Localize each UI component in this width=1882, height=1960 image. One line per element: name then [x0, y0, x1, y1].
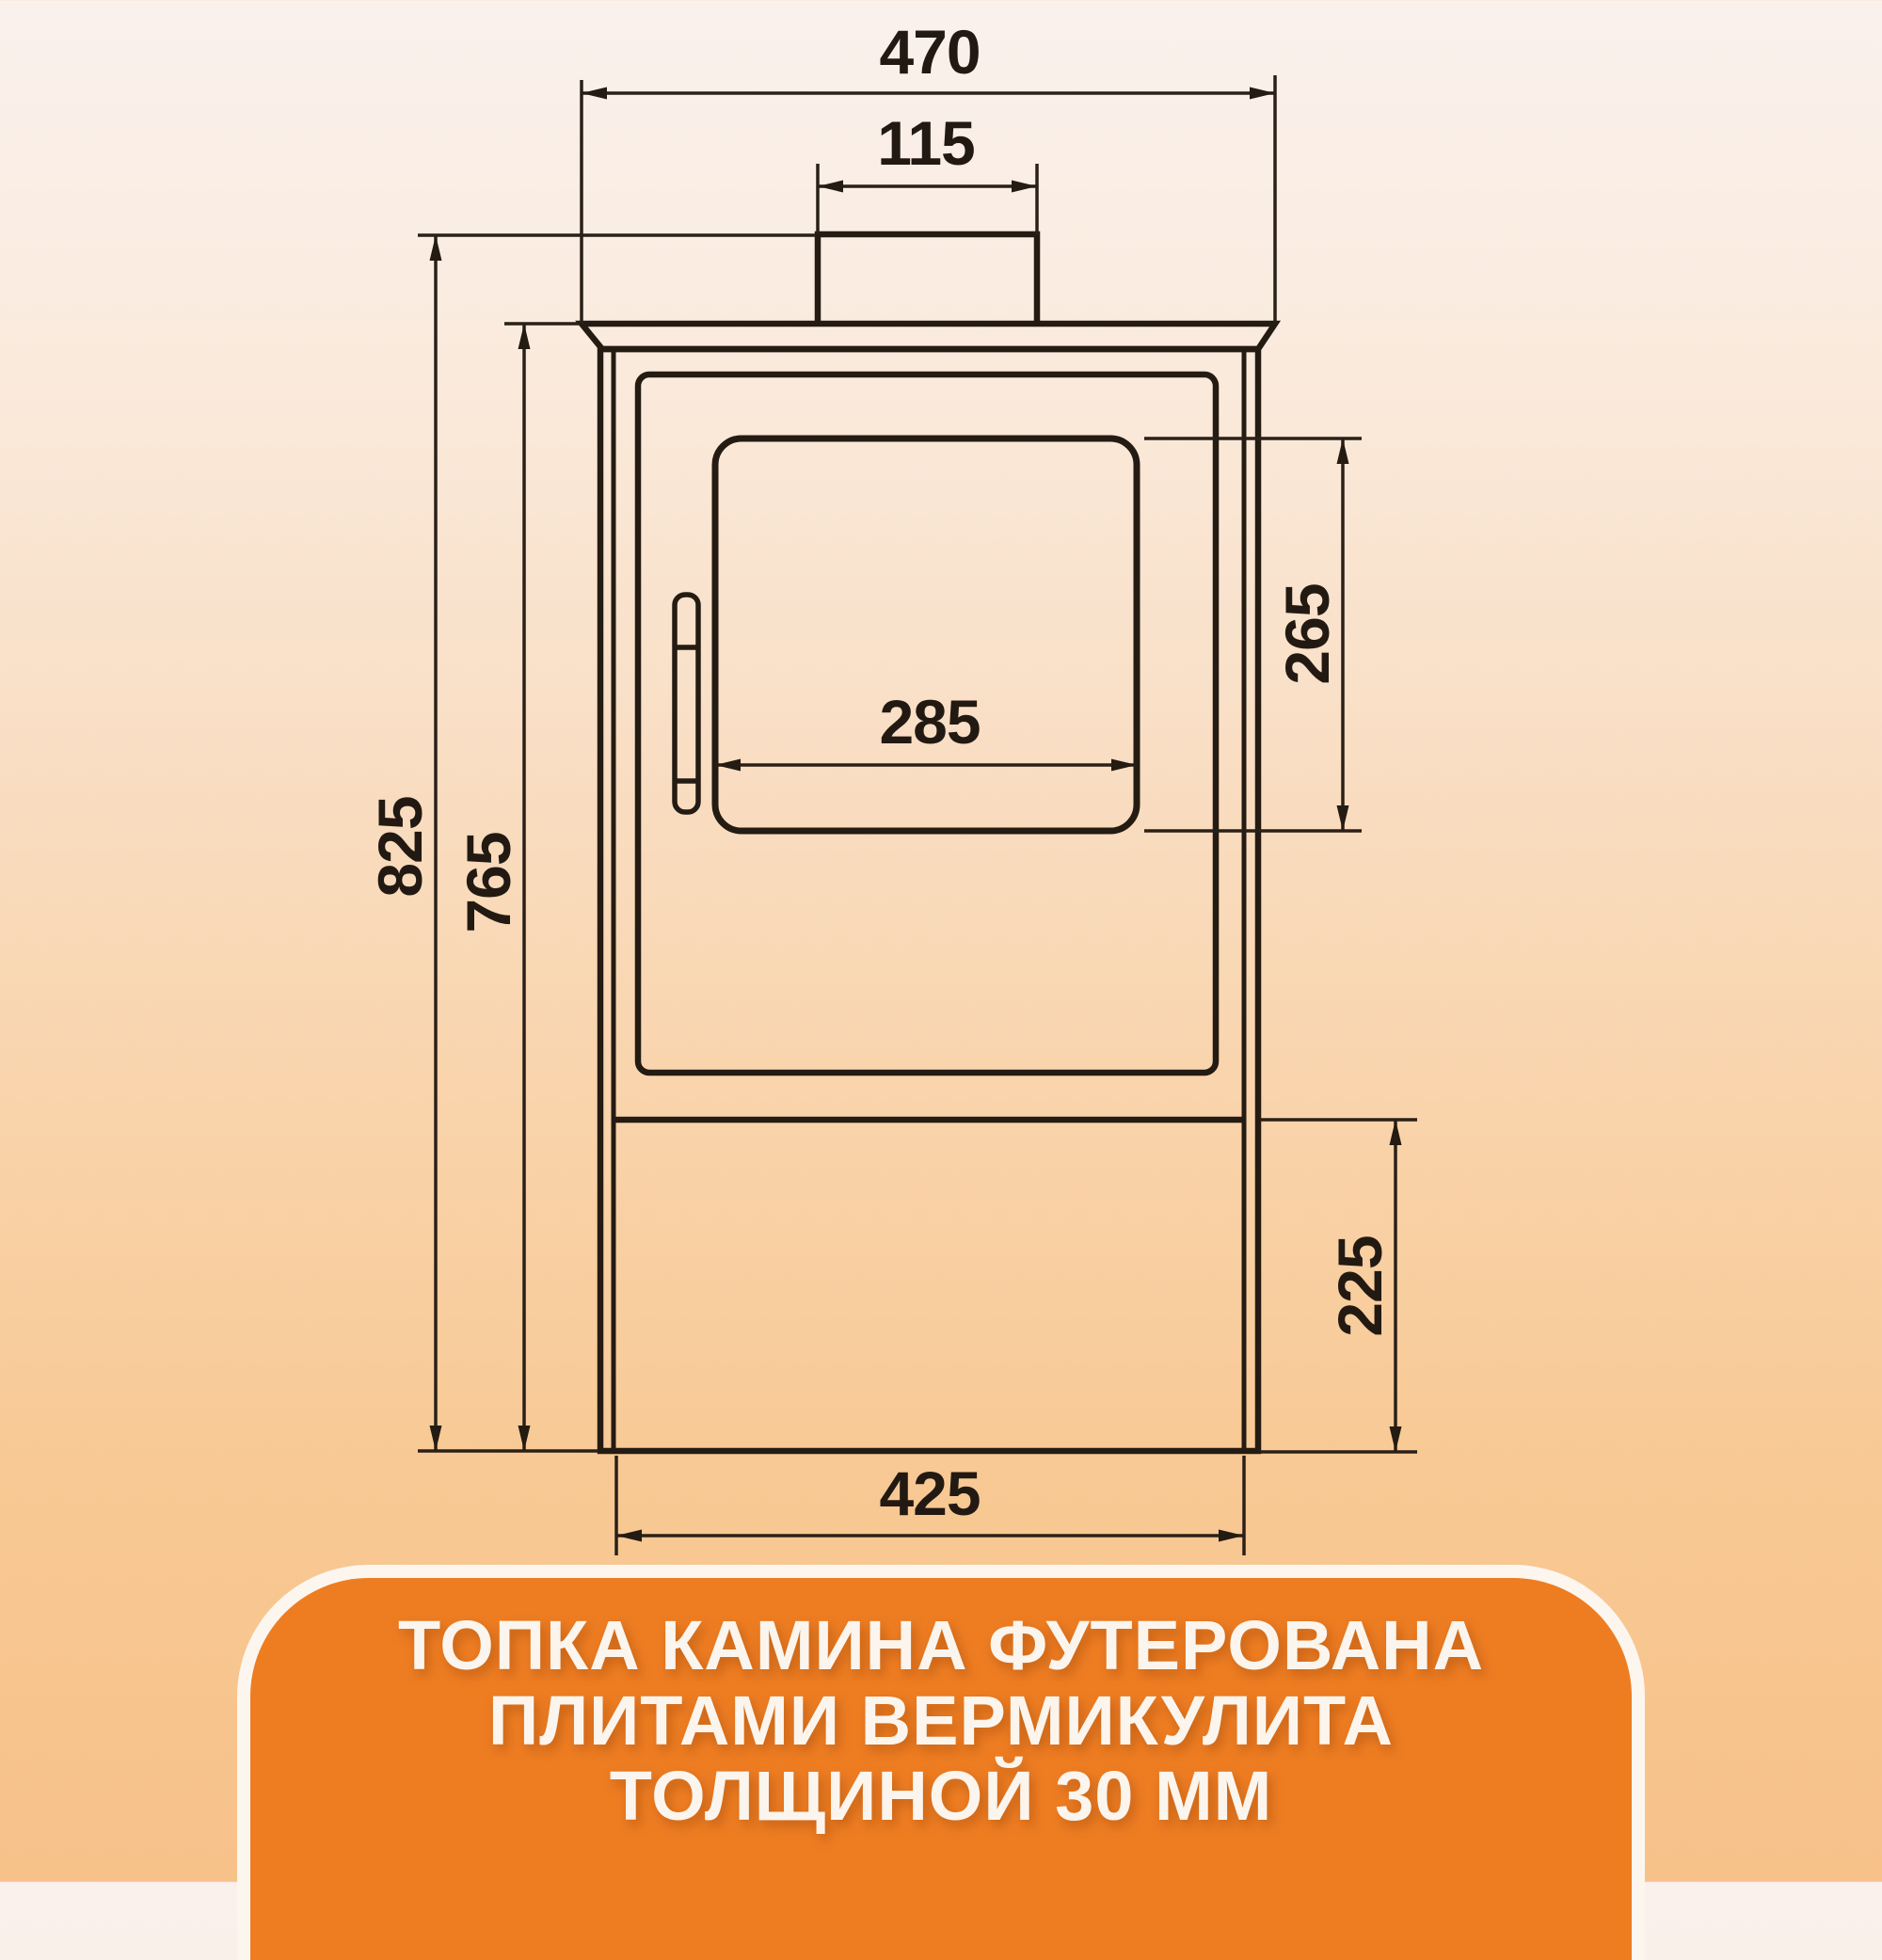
stove-body [600, 349, 1258, 1451]
page: { "background": { "gradient_top": "#FAF1… [0, 0, 1882, 1882]
dim-label-base-height: 225 [1325, 1235, 1395, 1336]
dimension-lines [418, 75, 1417, 1555]
dimension-labels: 470 115 825 765 265 285 225 425 [365, 17, 1395, 1528]
caption-line-3: ТОЛЩИНОЙ 30 ММ [250, 1759, 1632, 1834]
dim-label-top-plate-width: 470 [879, 17, 980, 87]
dim-label-glass-height: 265 [1272, 583, 1342, 684]
dim-label-body-height: 765 [454, 832, 523, 932]
door-glass [715, 438, 1137, 831]
caption-line-1: ТОПКА КАМИНА ФУТЕРОВАНА [250, 1608, 1632, 1683]
flue-pipe [818, 234, 1037, 324]
dim-label-body-width: 425 [879, 1458, 980, 1528]
caption-panel: ТОПКА КАМИНА ФУТЕРОВАНА ПЛИТАМИ ВЕРМИКУЛ… [237, 1565, 1645, 1960]
caption-line-2: ПЛИТАМИ ВЕРМИКУЛИТА [250, 1683, 1632, 1759]
dim-label-flue-diameter: 115 [877, 108, 974, 178]
stove-outline [582, 234, 1275, 1451]
door-handle [675, 595, 698, 812]
top-plate [582, 324, 1275, 349]
dim-label-glass-width: 285 [879, 687, 980, 757]
dim-label-total-height: 825 [365, 796, 435, 897]
